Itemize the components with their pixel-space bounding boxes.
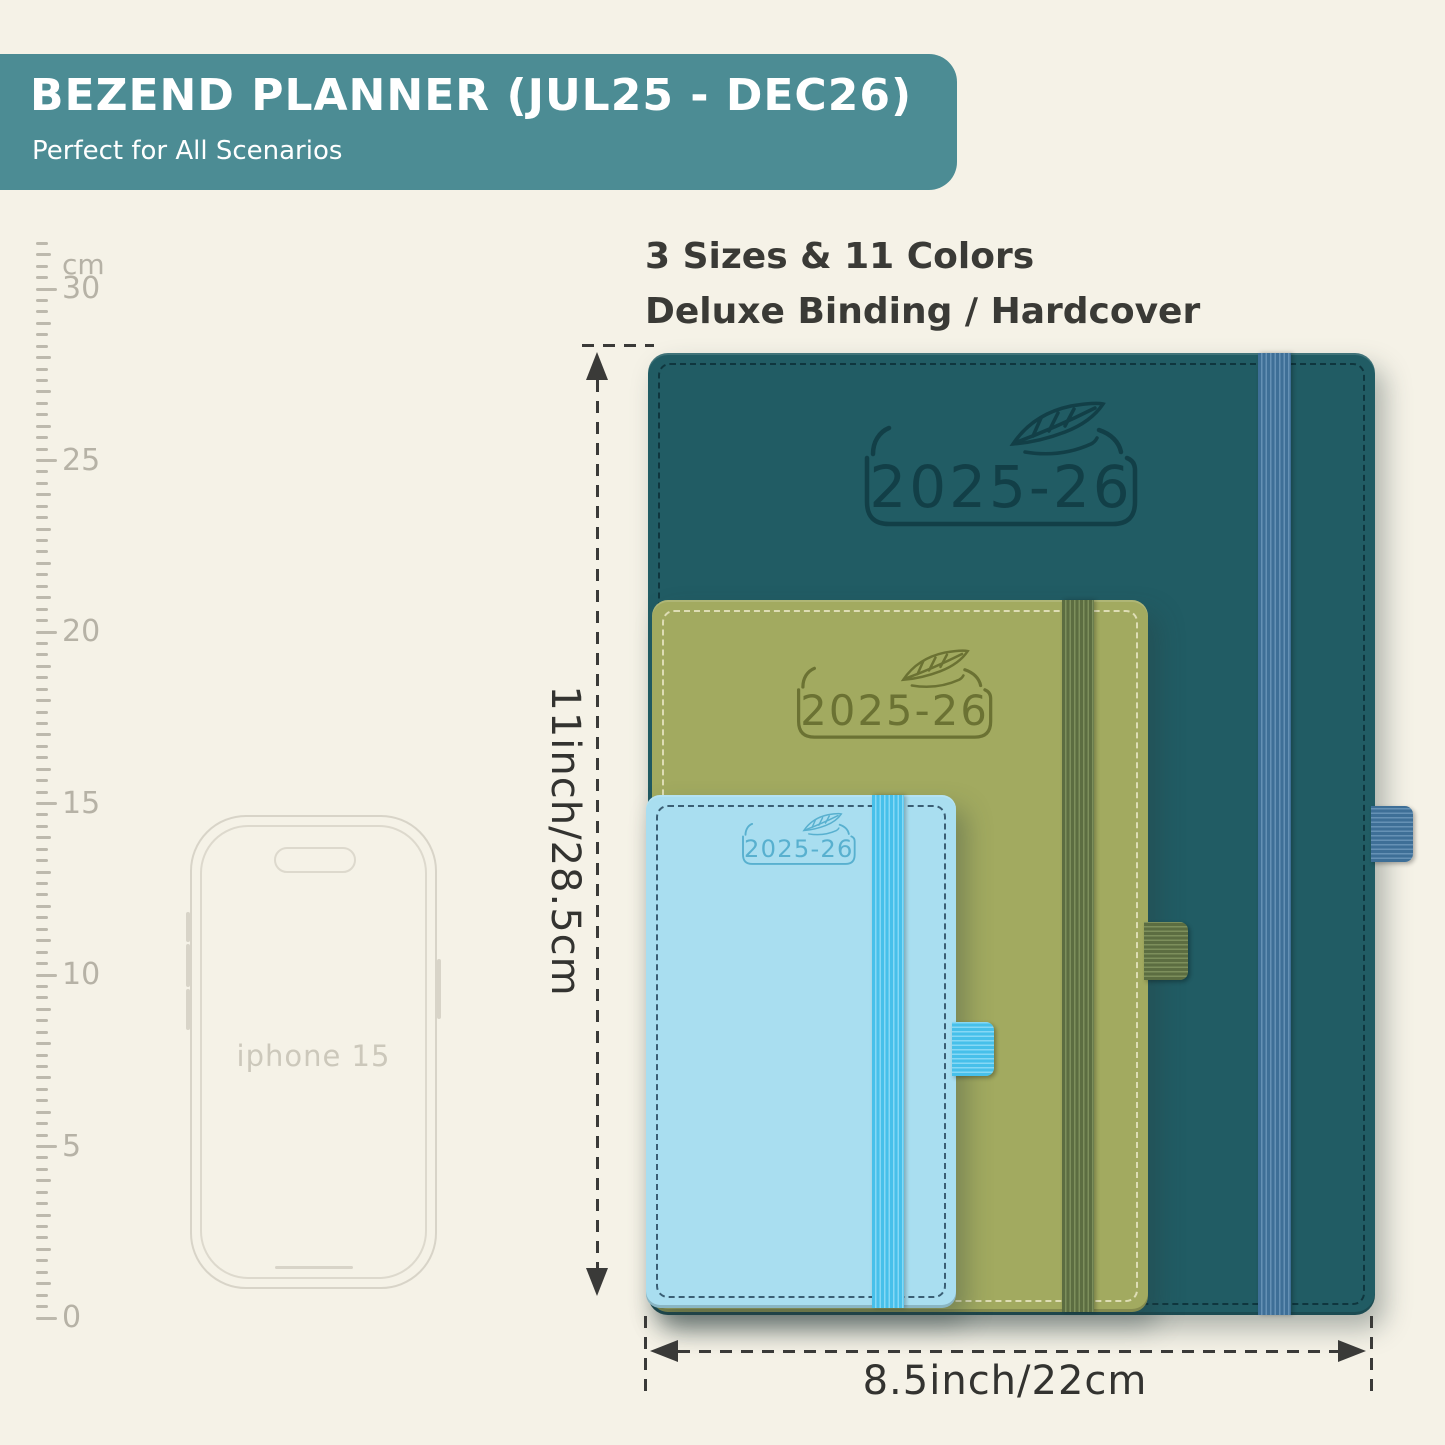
ruler-tick [36,802,57,805]
ruler-tick [36,699,51,702]
ruler-tick [36,665,51,668]
ruler-tick [36,1099,48,1102]
elastic-band-large [1258,353,1291,1315]
ruler-tick [36,505,48,508]
ruler-tick [36,265,48,268]
product-title: BEZEND PLANNER (JUL25 - DEC26) [30,70,912,121]
ruler-number-label: 5 [62,1129,81,1164]
ruler-tick [36,1191,48,1194]
ruler-tick [36,848,48,851]
ruler-tick [36,1317,57,1320]
feather-quill-icon [804,814,842,835]
ruler-tick [36,1008,51,1011]
ruler-tick [36,996,48,999]
ruler-tick [36,1305,48,1308]
pen-loop-small [952,1022,994,1076]
width-dim-extension-right [1370,1316,1373,1400]
ruler-number-label: 15 [62,786,100,821]
width-dim-line [678,1350,1338,1353]
pen-loop-large [1371,806,1413,862]
ruler-tick [36,825,48,828]
ruler-tick [36,1088,48,1091]
ruler-tick [36,1065,48,1068]
ruler-tick [36,779,48,782]
elastic-band-small [872,795,904,1308]
feather-quill-icon [1013,403,1103,453]
ruler-tick [36,951,48,954]
year-emblem-medium: 2025-26 [790,648,1005,756]
width-dim-extension-left [644,1316,647,1400]
ruler-tick [36,322,51,325]
ruler-tick [36,631,57,634]
feather-quill-icon [903,651,968,687]
ruler-tick [36,1076,51,1079]
ruler-tick [36,974,57,977]
ruler-tick [36,413,48,416]
ruler-tick [36,470,48,473]
ruler-tick [36,425,51,428]
ruler-tick [36,596,51,599]
ruler-tick [36,711,48,714]
ruler-tick [36,1282,51,1285]
ruler-tick [36,1294,48,1297]
ruler-tick [36,528,51,531]
ruler-tick [36,1259,48,1262]
ruler-tick [36,1214,51,1217]
ruler-tick [36,448,48,451]
feature-line-sizes: 3 Sizes & 11 Colors [645,236,1200,277]
ruler-tick [36,550,48,553]
year-emblem-large: 2025-26 [855,400,1155,550]
ruler-tick [36,836,51,839]
ruler-tick [36,459,57,462]
ruler-tick [36,1248,51,1251]
pen-loop-medium [1144,922,1188,980]
width-dim-label: 8.5inch/22cm [800,1358,1210,1404]
ruler-tick [36,745,48,748]
ruler-tick [36,619,48,622]
ruler-tick [36,1054,48,1057]
title-banner: BEZEND PLANNER (JUL25 - DEC26) Perfect f… [0,54,957,190]
ruler-tick [36,688,48,691]
ruler-tick [36,1031,48,1034]
ruler-tick [36,1225,48,1228]
ruler-tick [36,1019,48,1022]
ruler-tick [36,642,48,645]
ruler-tick [36,676,48,679]
ruler-tick [36,299,48,302]
ruler-tick [36,585,48,588]
ruler-tick [36,653,48,656]
year-text-medium: 2025-26 [800,686,989,735]
ruler-tick [36,368,48,371]
ruler-tick [36,1236,48,1239]
ruler-tick [36,242,48,245]
dynamic-island-icon [274,847,356,873]
ruler-tick [36,516,48,519]
height-dim-line [596,380,599,1270]
ruler-tick [36,1042,51,1045]
ruler-tick [36,882,48,885]
ruler-tick [36,573,48,576]
ruler-tick [36,379,48,382]
ruler-tick [36,436,48,439]
ruler-tick [36,333,48,336]
ruler-unit-label: cm [62,248,105,281]
ruler-tick [36,1179,51,1182]
product-infographic: BEZEND PLANNER (JUL25 - DEC26) Perfect f… [0,0,1445,1445]
ruler-tick [36,1145,57,1148]
ruler-tick [36,356,51,359]
planner-small: 2025-26 [646,795,956,1308]
ruler-tick [36,288,57,291]
ruler-tick [36,402,48,405]
ruler-tick [36,768,51,771]
arrow-up-icon [586,352,608,380]
ruler-tick [36,482,48,485]
feature-line-binding: Deluxe Binding / Hardcover [645,291,1200,332]
cm-ruler: 302520151050cm [0,0,120,1445]
iphone-volume-up-button [186,944,190,987]
ruler-tick [36,1134,48,1137]
height-dim-extension-line [582,344,654,347]
ruler-tick [36,1111,51,1114]
ruler-number-label: 25 [62,443,100,478]
elastic-band-medium [1062,600,1094,1312]
iphone-volume-down-button [186,989,190,1030]
year-text-large: 2025-26 [869,453,1132,521]
iphone-outline: iphone 15 [190,815,437,1289]
ruler-tick [36,733,51,736]
iphone-mute-switch [186,912,190,942]
arrow-right-icon [1338,1340,1366,1362]
ruler-tick [36,813,48,816]
ruler-tick [36,962,48,965]
ruler-tick [36,859,48,862]
ruler-number-label: 0 [62,1300,81,1335]
ruler-tick [36,1156,48,1159]
year-text-small: 2025-26 [744,835,854,863]
ruler-tick [36,871,51,874]
iphone-power-button [437,959,441,1019]
ruler-tick [36,276,48,279]
ruler-tick [36,1168,48,1171]
iphone-label: iphone 15 [192,1039,435,1073]
ruler-tick [36,310,48,313]
ruler-tick [36,1122,48,1125]
ruler-tick [36,893,48,896]
ruler-tick [36,493,51,496]
ruler-tick [36,905,51,908]
iphone-speaker-slot [275,1266,353,1269]
arrow-left-icon [650,1340,678,1362]
ruler-tick [36,1271,48,1274]
ruler-tick [36,756,48,759]
year-emblem-small: 2025-26 [738,812,863,875]
ruler-tick [36,939,51,942]
ruler-tick [36,1202,48,1205]
ruler-tick [36,345,48,348]
ruler-tick [36,539,48,542]
height-dim-label: 11inch/28.5cm [542,606,588,1076]
ruler-tick [36,608,48,611]
ruler-tick [36,791,48,794]
ruler-tick [36,562,51,565]
ruler-tick [36,916,48,919]
feature-headline: 3 Sizes & 11 Colors Deluxe Binding / Har… [645,236,1200,332]
ruler-tick [36,390,51,393]
ruler-tick [36,928,48,931]
ruler-tick [36,722,48,725]
ruler-number-label: 20 [62,614,100,649]
ruler-number-label: 10 [62,957,100,992]
ruler-tick [36,985,48,988]
ruler-tick [36,253,51,256]
arrow-down-icon [586,1268,608,1296]
